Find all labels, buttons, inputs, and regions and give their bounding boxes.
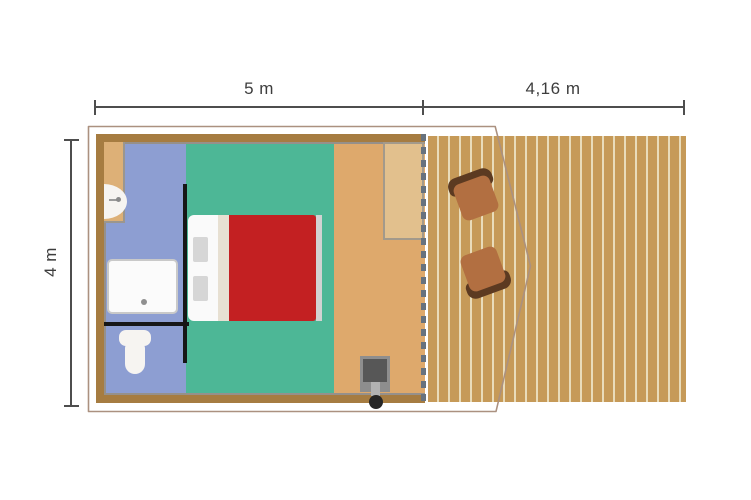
stove-pipe (371, 382, 380, 396)
pillow (193, 237, 208, 262)
top-dimension-line (95, 106, 685, 108)
dimension-tick (64, 405, 79, 407)
wood-stove (360, 356, 390, 392)
partition-wall-vertical (183, 184, 187, 363)
floorplan-canvas: 5 m 4,16 m 4 m (0, 0, 751, 500)
dimension-tick (94, 100, 96, 115)
pillow (193, 276, 208, 301)
partition-wall-horizontal (104, 322, 189, 326)
wood-stove-top (363, 359, 387, 382)
dimension-tick (422, 100, 424, 115)
sideboard (383, 142, 424, 240)
double-bed (188, 215, 322, 321)
bed-sheet-fold (218, 215, 229, 321)
bed-footboard (316, 215, 322, 321)
dimension-tick (64, 139, 79, 141)
tent-width-label: 5 m (244, 79, 274, 99)
deck-width-label: 4,16 m (526, 79, 581, 99)
tent-depth-label: 4 m (41, 247, 61, 277)
stove-flue-icon (369, 395, 383, 409)
shower-tray (107, 259, 178, 314)
bed-duvet (229, 215, 316, 321)
toilet (125, 344, 145, 374)
dimension-tick (683, 100, 685, 115)
bed-headboard (188, 215, 218, 321)
tent-interior (104, 142, 425, 395)
shower-drain-icon (141, 299, 147, 305)
tent-entrance-dashed-line (421, 134, 426, 403)
left-dimension-line (70, 140, 72, 407)
wall-inner-edge (104, 142, 425, 144)
tap-icon (116, 197, 121, 202)
